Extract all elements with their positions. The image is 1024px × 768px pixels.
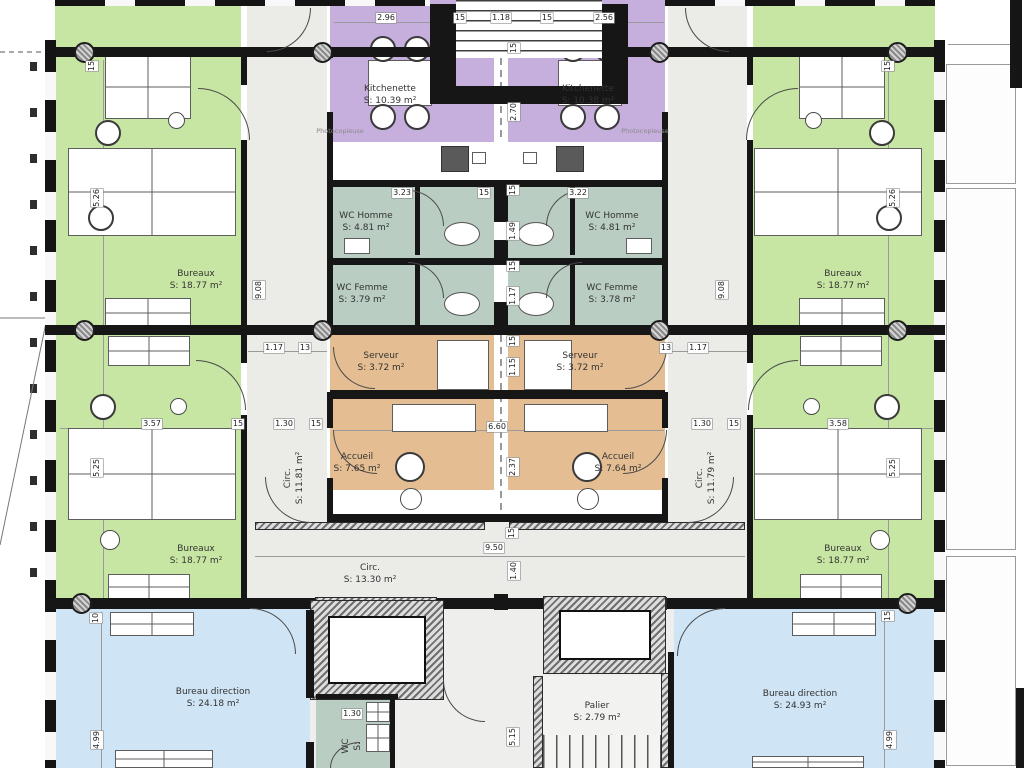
facade-wall-top-right <box>665 0 935 6</box>
chair <box>577 488 599 510</box>
table <box>105 298 191 328</box>
dim-line <box>248 351 327 352</box>
chair <box>803 398 820 415</box>
washbasin <box>626 238 652 254</box>
chair <box>876 205 902 231</box>
partition-wall <box>662 478 668 522</box>
toilet <box>444 222 480 246</box>
chair <box>168 112 185 129</box>
partition-wall <box>327 478 333 522</box>
chair <box>400 488 422 510</box>
floor-plan: KitchenetteS: 10.39 m²KitchenetteS: 10.3… <box>0 0 1024 768</box>
kitchen-table <box>368 60 432 106</box>
direction-right-wall <box>668 652 674 768</box>
wc-fixture <box>366 724 390 752</box>
dim-line <box>668 351 747 352</box>
direction-left-wall <box>306 742 314 768</box>
door-arc <box>198 88 250 140</box>
exterior-wall-left <box>45 40 56 768</box>
wc-bottom-wall-top <box>316 694 398 699</box>
column <box>312 320 333 341</box>
structural-wall-top-left <box>45 47 430 57</box>
column <box>649 42 670 63</box>
chair <box>95 120 121 146</box>
table <box>105 55 191 119</box>
column <box>649 320 670 341</box>
column <box>887 320 908 341</box>
core-wall <box>494 182 508 222</box>
balcony-right-bottom <box>946 556 1016 766</box>
partition-wall <box>327 112 333 182</box>
chair <box>90 394 116 420</box>
table <box>108 574 190 600</box>
axis-line <box>884 612 885 768</box>
chair <box>170 398 187 415</box>
partition-wall <box>241 47 247 85</box>
counter-unit <box>472 152 486 164</box>
reception-desk <box>524 404 608 432</box>
office-chair <box>395 452 425 482</box>
partition-wall <box>747 415 753 598</box>
serveur-wall-bottom <box>330 390 665 399</box>
column <box>897 593 918 614</box>
washbasin <box>344 238 370 254</box>
server-rack <box>437 340 489 390</box>
neighbour-wall-bottom-right <box>1016 688 1024 768</box>
accueil-wall-bottom <box>330 514 665 522</box>
chair <box>370 104 396 130</box>
partition-wall <box>241 330 247 363</box>
facade-wall-top-left <box>55 0 430 6</box>
core-wall <box>494 594 508 610</box>
table <box>110 612 194 636</box>
table <box>108 336 190 366</box>
meeting-table <box>752 756 864 768</box>
table <box>799 298 885 328</box>
chair <box>870 530 890 550</box>
kitchen-sink <box>441 146 469 172</box>
facade-line <box>948 44 1016 45</box>
exterior-wall-right <box>934 40 945 768</box>
column <box>74 320 95 341</box>
partition-wall <box>241 415 247 598</box>
core-wall <box>494 302 508 330</box>
chair <box>874 394 900 420</box>
partition-wall <box>662 112 668 182</box>
office-chair <box>572 452 602 482</box>
chair <box>869 120 895 146</box>
partition-wall <box>747 47 753 85</box>
chair <box>404 104 430 130</box>
kitchen-sink <box>556 146 584 172</box>
balcony-right-middle <box>946 188 1016 550</box>
meeting-table <box>115 750 213 768</box>
table <box>799 55 885 119</box>
room-floor-palier <box>543 676 661 736</box>
wc-fixture <box>366 702 390 722</box>
neighbour-wall-top-right <box>1010 0 1022 88</box>
counter-unit <box>523 152 537 164</box>
dim-line <box>255 556 745 557</box>
lift-left <box>328 616 426 684</box>
main-stairs <box>543 735 661 768</box>
partition-wall <box>662 182 668 330</box>
chair <box>594 104 620 130</box>
table <box>800 574 882 600</box>
partition-wall <box>747 330 753 363</box>
desk-group <box>68 428 236 520</box>
desk-group <box>754 428 922 520</box>
balcony-right-top <box>946 64 1016 184</box>
server-rack <box>524 340 572 390</box>
center-axis-strip <box>494 40 508 522</box>
table <box>792 612 876 636</box>
chair <box>805 112 822 129</box>
partition-wall <box>662 392 668 428</box>
wc-bottom-wall-right <box>390 694 395 768</box>
partition-wall <box>241 140 247 330</box>
corridor-hatch-wall-left <box>255 522 485 530</box>
direction-left-wall <box>306 610 314 698</box>
stair-core-wall-left <box>533 676 543 768</box>
lift-right <box>559 610 651 660</box>
partition-wall <box>747 140 753 330</box>
column <box>71 593 92 614</box>
chair <box>88 205 114 231</box>
axis-line <box>101 612 102 768</box>
column <box>74 42 95 63</box>
column <box>312 42 333 63</box>
reception-desk <box>392 404 476 432</box>
corridor-floor-bottom <box>247 522 747 600</box>
entry-stair-treads <box>456 0 602 58</box>
chair <box>560 104 586 130</box>
entry-stair-landing-wall <box>430 86 628 104</box>
corridor-hatch-wall-right <box>509 522 745 530</box>
toilet <box>444 292 480 316</box>
table <box>800 336 882 366</box>
core-wall <box>494 240 508 260</box>
column <box>887 42 908 63</box>
left-facade-mullions <box>30 62 37 598</box>
chair <box>100 530 120 550</box>
partition-wall <box>327 182 333 330</box>
partition-wall <box>327 392 333 428</box>
